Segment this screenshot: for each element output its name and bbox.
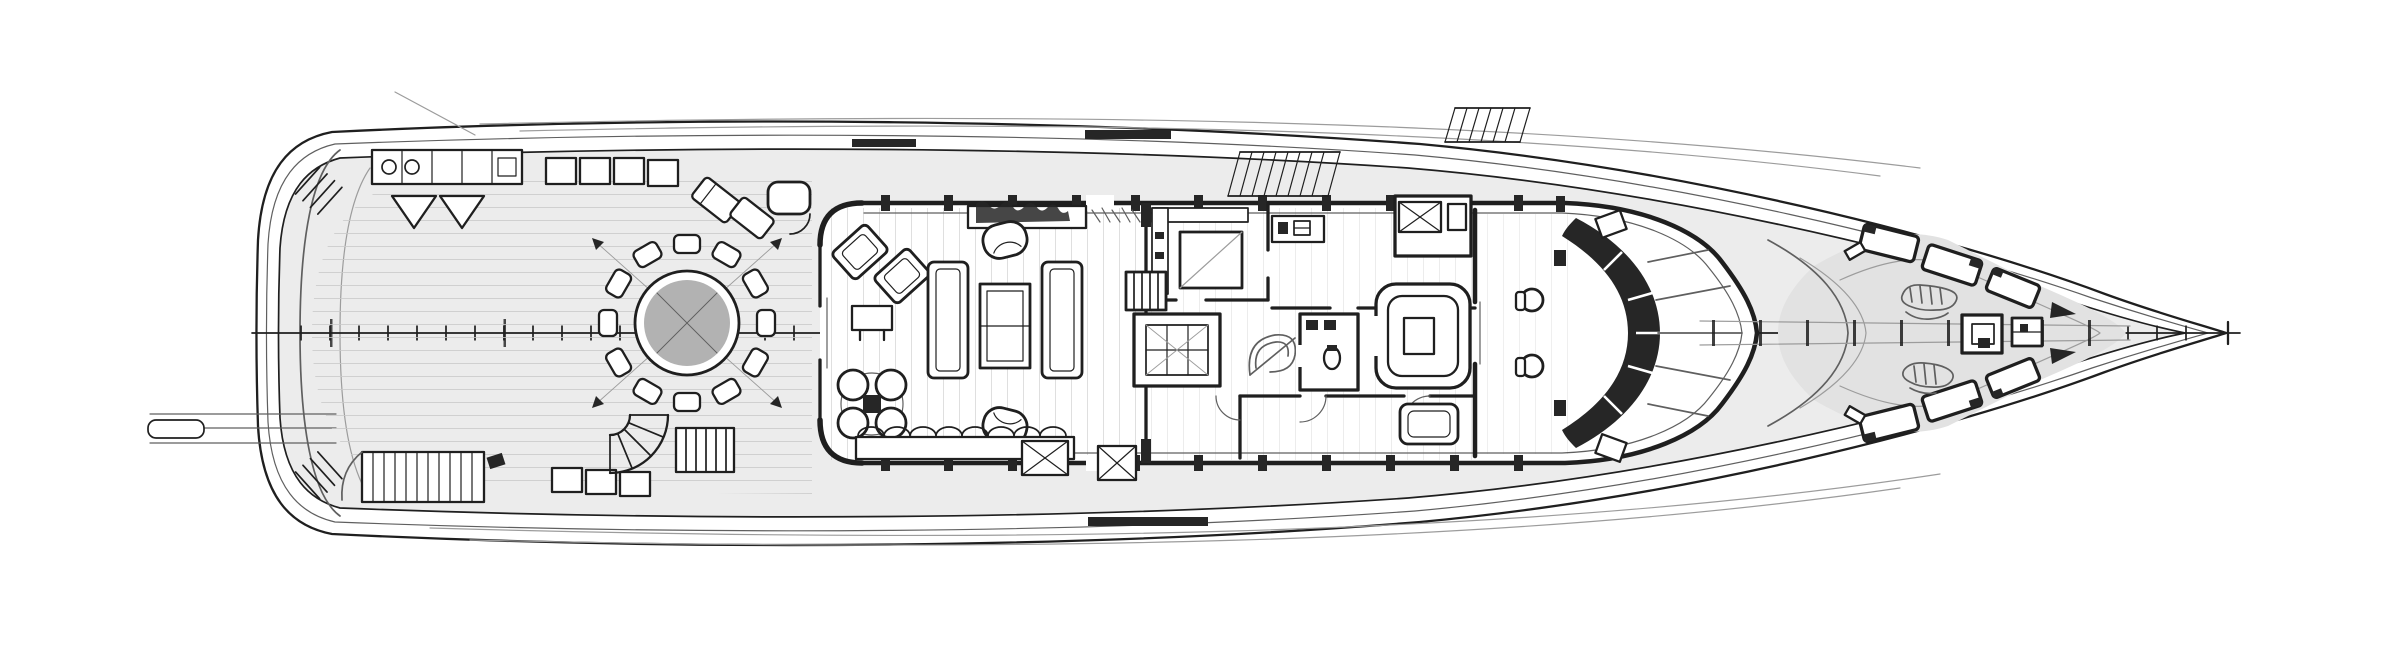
stairwell-skylight (1134, 314, 1220, 386)
console-equipment (1554, 400, 1566, 416)
console-equipment (1554, 250, 1566, 266)
salon-sofa-port-facing (928, 262, 968, 378)
cross-braced-cabinet (1022, 441, 1068, 475)
deck-hatch-forward (2012, 318, 2042, 346)
side-stair-forward (1445, 108, 1530, 142)
aft-sideboard (372, 150, 522, 184)
yacht-deck-plan-drawing: Superyacht main deck general arrangement… (0, 0, 2400, 672)
sheer-gate-strip-top (1085, 130, 1171, 139)
sheer-gate-strip-bottom (1088, 517, 1208, 526)
helm-chair (1516, 355, 1543, 377)
passerelle-end-cap (148, 420, 204, 438)
deck-plan-canvas: Superyacht main deck general arrangement… (0, 0, 2400, 672)
day-head (1296, 314, 1358, 390)
locker (1448, 204, 1466, 230)
sheer-gate-strip-top-aft (852, 139, 916, 147)
dining-chair (674, 235, 700, 253)
cross-braced-cabinet (1098, 446, 1136, 480)
settee-opening (1368, 316, 1382, 356)
pilothouse-u-settee (1368, 284, 1470, 388)
dining-chair (599, 310, 617, 336)
stair-treads-down (1126, 272, 1166, 310)
basin (1306, 320, 1318, 330)
salon-sofa-starboard-facing (1042, 262, 1082, 378)
aft-deck (312, 150, 812, 502)
appliance-counter (1272, 216, 1324, 242)
dining-chair (757, 310, 775, 336)
transom-grating-stair (342, 452, 484, 502)
aft-bench-row-starboard (552, 468, 650, 496)
captain-office (1395, 196, 1471, 256)
side-door-gap-port (1086, 195, 1114, 211)
dining-chair (674, 393, 700, 411)
games-table-top (863, 395, 881, 413)
basin (1324, 320, 1336, 330)
day-head-door-gap (1296, 345, 1304, 367)
deck-hatch-main (1962, 315, 2002, 353)
coffee-table (980, 284, 1030, 368)
straight-stair-treads (676, 428, 734, 472)
helm-chair (1516, 289, 1543, 311)
aft-lower-room-bench (1400, 404, 1458, 444)
settee-table (1404, 318, 1434, 354)
